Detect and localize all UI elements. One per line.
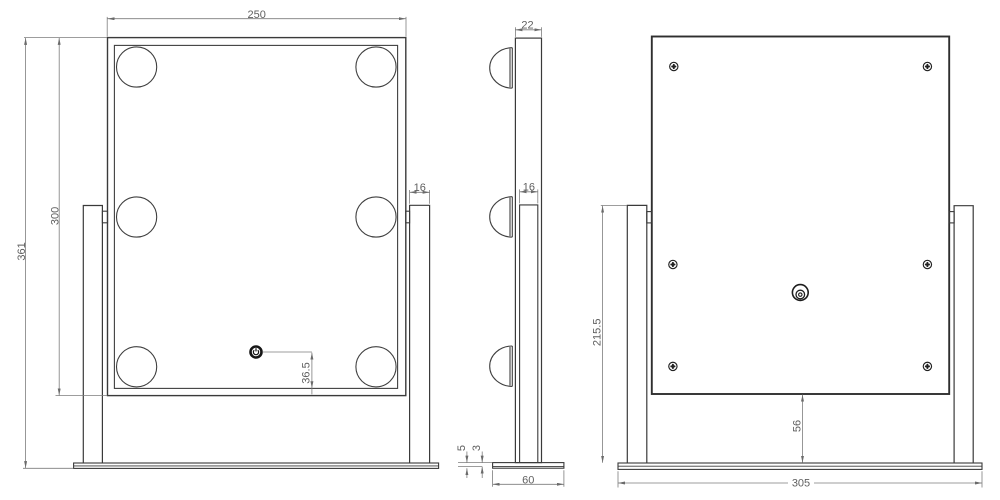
svg-text:16: 16 [414, 182, 426, 194]
svg-text:36.5: 36.5 [300, 362, 312, 383]
svg-text:305: 305 [792, 478, 810, 490]
svg-text:3: 3 [471, 445, 483, 451]
svg-text:361: 361 [16, 242, 28, 260]
svg-text:300: 300 [50, 207, 62, 225]
svg-text:16: 16 [523, 181, 535, 193]
svg-text:56: 56 [791, 420, 803, 432]
svg-text:215.5: 215.5 [591, 319, 603, 347]
svg-text:250: 250 [248, 9, 266, 21]
svg-text:5: 5 [456, 445, 468, 451]
svg-text:22: 22 [521, 20, 533, 32]
svg-text:60: 60 [522, 474, 534, 486]
